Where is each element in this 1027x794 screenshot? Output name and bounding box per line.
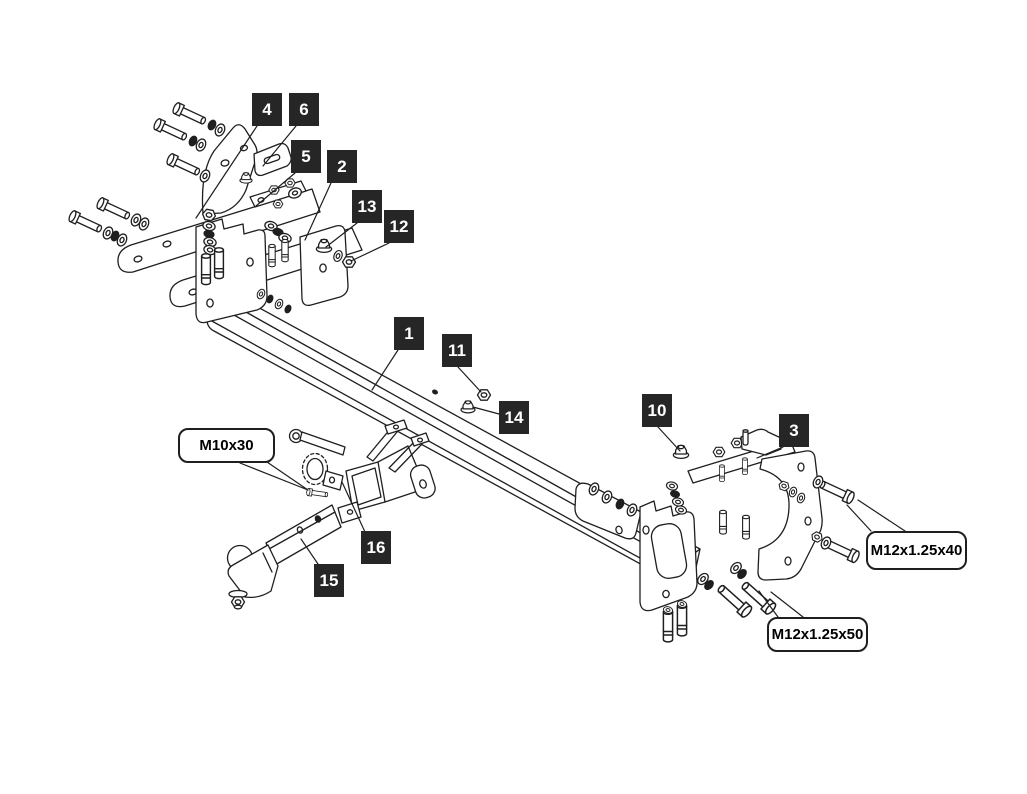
slotted-bracket bbox=[254, 144, 291, 176]
callout-part-13: 13 bbox=[352, 190, 382, 223]
m10-bolt bbox=[306, 488, 328, 498]
callout-part-2: 2 bbox=[327, 150, 357, 183]
ball-mount-shank bbox=[266, 505, 341, 565]
callout-part-14: 14 bbox=[499, 401, 529, 434]
callout-part-3: 3 bbox=[779, 414, 809, 447]
callout-part-10: 10 bbox=[642, 394, 672, 427]
callout-part-1: 1 bbox=[394, 317, 424, 350]
hex-nut-11 bbox=[478, 390, 491, 400]
middle-fasteners bbox=[461, 390, 490, 413]
callout-part-11: 11 bbox=[442, 334, 472, 367]
flange-nut-10 bbox=[673, 445, 688, 458]
callout-part-15: 15 bbox=[314, 564, 344, 597]
inner-side-plate bbox=[640, 501, 697, 611]
callout-part-5: 5 bbox=[291, 140, 321, 173]
right-bracket-assembly bbox=[575, 429, 861, 642]
callout-part-16: 16 bbox=[361, 531, 391, 564]
spec-label-m12x1-25x40: M12x1.25x40 bbox=[866, 531, 967, 570]
diagram-canvas: 1 2 3 4 5 6 10 11 12 13 14 15 16 M10x30 … bbox=[0, 0, 1027, 794]
callout-part-6: 6 bbox=[289, 93, 319, 126]
hitch-pin-shaft bbox=[300, 432, 345, 455]
callout-part-4: 4 bbox=[252, 93, 282, 126]
hex-nut-12 bbox=[343, 257, 356, 267]
callout-part-12: 12 bbox=[384, 210, 414, 243]
line-art bbox=[0, 0, 1027, 794]
spec-label-m12x1-25x50: M12x1.25x50 bbox=[767, 617, 868, 652]
m12x40-bolt bbox=[818, 478, 856, 504]
outer-side-plate bbox=[758, 451, 822, 580]
spec-label-m10x30: M10x30 bbox=[178, 428, 275, 463]
